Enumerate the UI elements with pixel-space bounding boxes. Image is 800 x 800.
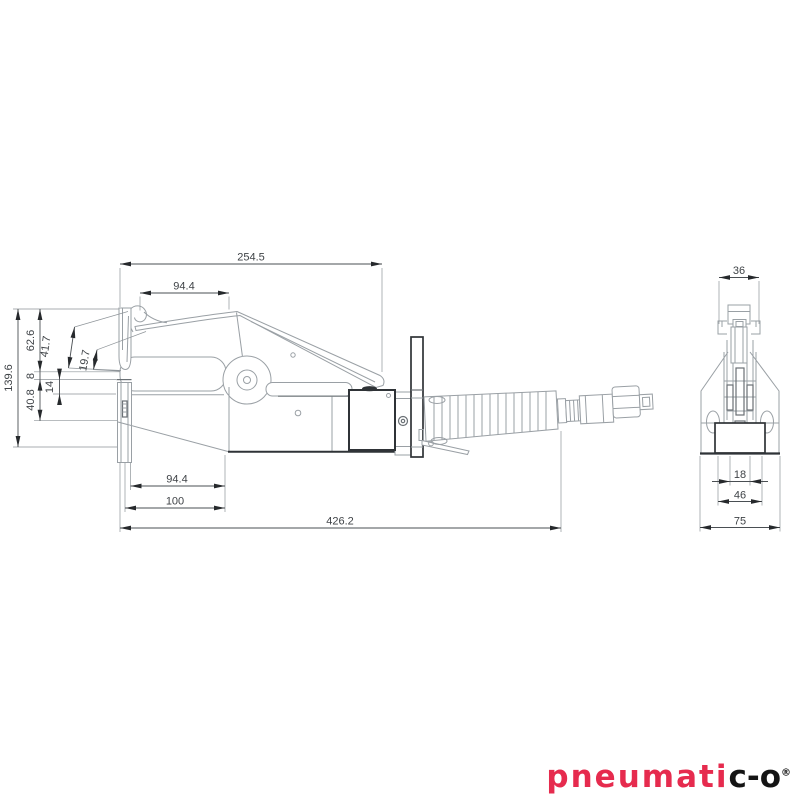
- dim-label-36: 36: [733, 265, 745, 277]
- logo-text-black: c-o: [728, 759, 781, 795]
- hose-fitting: [557, 385, 654, 425]
- front-view: 254.5 94.4 139.6 62.6 8 40.8 14 41.7 19.…: [3, 252, 654, 533]
- dim-label-40-8: 40.8: [25, 389, 37, 410]
- dim-label-46: 46: [734, 490, 746, 502]
- dim-label-8: 8: [25, 373, 37, 379]
- upper-jaw-blade: [119, 308, 131, 370]
- mounting-flange: [411, 337, 423, 457]
- side-view: 36 18 46 75: [700, 265, 780, 532]
- dim-label-139-6: 139.6: [3, 364, 15, 392]
- dim-label-94-4-top: 94.4: [173, 281, 194, 293]
- dim-label-254-5: 254.5: [237, 252, 265, 264]
- dim-label-100: 100: [166, 496, 184, 508]
- logo-text-red: pneumati: [546, 759, 728, 795]
- lower-jaw-holder: [117, 380, 132, 463]
- dim-label-94-4-bottom: 94.4: [166, 474, 187, 486]
- technical-drawing: 254.5 94.4 139.6 62.6 8 40.8 14 41.7 19.…: [0, 0, 800, 800]
- dim-label-18: 18: [734, 469, 746, 481]
- dim-label-75: 75: [734, 516, 746, 528]
- dim-label-62-6: 62.6: [25, 330, 37, 351]
- dim-label-426-2: 426.2: [326, 516, 354, 528]
- drawing-page: 254.5 94.4 139.6 62.6 8 40.8 14 41.7 19.…: [0, 0, 800, 800]
- pneumatico-logo: pneumatic-o®: [546, 762, 791, 793]
- side-base: [700, 423, 780, 454]
- grip-handle: [424, 391, 558, 445]
- logo-registered-icon: ®: [781, 768, 791, 779]
- dim-label-41-7: 41.7: [39, 335, 54, 358]
- dim-label-19-7: 19.7: [77, 349, 93, 372]
- pivot-assembly: [120, 353, 352, 416]
- dim-label-14: 14: [44, 381, 56, 393]
- valve-block: [349, 386, 411, 455]
